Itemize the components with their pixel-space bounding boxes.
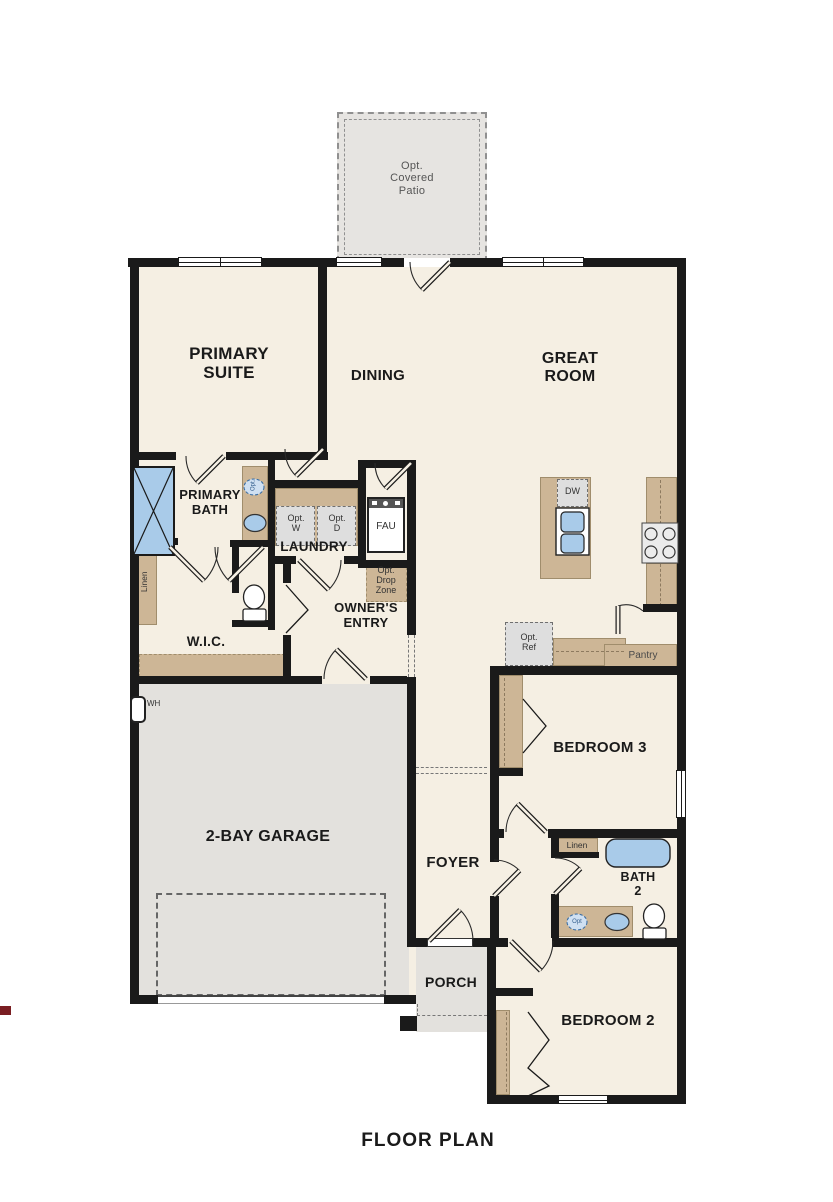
porch-post	[400, 1016, 417, 1031]
primary-bath-label: PRIMARY BATH	[170, 488, 250, 517]
wall	[490, 838, 499, 862]
door-opening	[176, 452, 226, 460]
bedroom2-closet-shelf	[496, 1010, 510, 1095]
wall	[232, 547, 239, 593]
door-opening	[283, 583, 291, 635]
garage-door-threshold	[158, 995, 384, 1004]
foyer-opening-dashed	[416, 773, 487, 774]
patio-label: Opt. Covered Patio	[372, 160, 452, 197]
water-heater-label: WH	[147, 700, 169, 709]
wall	[553, 852, 599, 858]
pantry-label: Pantry	[612, 650, 674, 661]
primary-suite-label: PRIMARY SUITE	[149, 344, 309, 382]
fau-unit: FAU	[367, 497, 405, 553]
wic-label: W.I.C.	[176, 634, 236, 649]
porch-label: PORCH	[416, 975, 486, 991]
wall	[407, 460, 416, 947]
opt-dryer-label: Opt. D	[318, 513, 356, 533]
wall	[130, 538, 178, 545]
kitchen-counter-upper	[646, 477, 677, 524]
wall	[232, 620, 275, 627]
wall	[382, 995, 416, 1004]
window	[502, 257, 584, 267]
wall	[130, 995, 160, 1004]
great-room-label: GREAT ROOM	[510, 350, 630, 386]
door-opening	[322, 676, 370, 684]
porch-edge-dashed	[417, 1015, 487, 1016]
cased-opening-dash	[414, 635, 415, 677]
window	[336, 257, 382, 267]
opt-sink-bath2-label: Opt	[569, 919, 585, 926]
closet-pole-line	[506, 1012, 507, 1092]
bath2-label: BATH 2	[612, 870, 664, 898]
garage-label: 2-BAY GARAGE	[178, 828, 358, 846]
opt-refrigerator-label: Opt. Ref	[506, 632, 552, 652]
wall	[490, 896, 499, 938]
linen-bath2-label: Linen	[556, 841, 598, 851]
window	[178, 257, 262, 267]
door-opening	[296, 556, 344, 564]
wall	[487, 938, 496, 1104]
fau-label: FAU	[369, 521, 403, 532]
counter-centerline	[660, 480, 661, 524]
door-opening	[508, 938, 552, 947]
counter-centerline	[660, 564, 661, 606]
owners-entry-label: OWNER'S ENTRY	[316, 601, 416, 630]
scan-artifact	[0, 1006, 11, 1015]
opt-sink-primary-label: Opt.	[251, 477, 258, 493]
opt-washer-label: Opt. W	[277, 513, 315, 533]
linen-primary-label: Linen	[140, 562, 150, 602]
wall	[130, 676, 416, 684]
porch-edge-dashed	[417, 1004, 418, 1016]
water-heater	[130, 696, 146, 723]
fau-control-band	[369, 499, 403, 508]
bedroom2-label: BEDROOM 2	[538, 1013, 678, 1030]
wall	[358, 460, 416, 468]
wall	[130, 452, 328, 460]
front-door-threshold	[427, 938, 473, 947]
wall	[643, 604, 677, 612]
cased-opening-dash	[408, 635, 409, 677]
wall	[490, 666, 499, 838]
wall	[230, 540, 270, 547]
kitchen-counter-lower	[646, 563, 677, 608]
wall	[490, 666, 686, 675]
bedroom3-label: BEDROOM 3	[530, 740, 670, 757]
bedroom3-closet-shelf	[499, 675, 523, 768]
dining-label: DINING	[328, 368, 428, 385]
door-opening	[404, 258, 450, 267]
garage-door-dashed-outline	[156, 893, 386, 996]
drop-zone-label: Opt. Drop Zone	[363, 565, 409, 595]
laundry-label: LAUNDRY	[266, 539, 362, 554]
wall	[493, 988, 533, 996]
dishwasher-label: DW	[557, 486, 588, 496]
window	[558, 1095, 608, 1104]
wic-shelving	[139, 654, 285, 677]
wall	[677, 258, 686, 1104]
window	[676, 770, 686, 818]
foyer-opening-dashed	[416, 767, 487, 768]
floor-plan-canvas: FAU	[0, 0, 833, 1202]
wall	[268, 480, 363, 488]
closet-pole-line	[504, 678, 505, 766]
foyer-label: FOYER	[416, 855, 490, 872]
door-opening	[504, 829, 548, 838]
wall	[318, 258, 327, 454]
page-title: FLOOR PLAN	[318, 1130, 538, 1151]
wall	[490, 768, 523, 776]
wall	[283, 564, 291, 583]
wall	[130, 258, 139, 1004]
